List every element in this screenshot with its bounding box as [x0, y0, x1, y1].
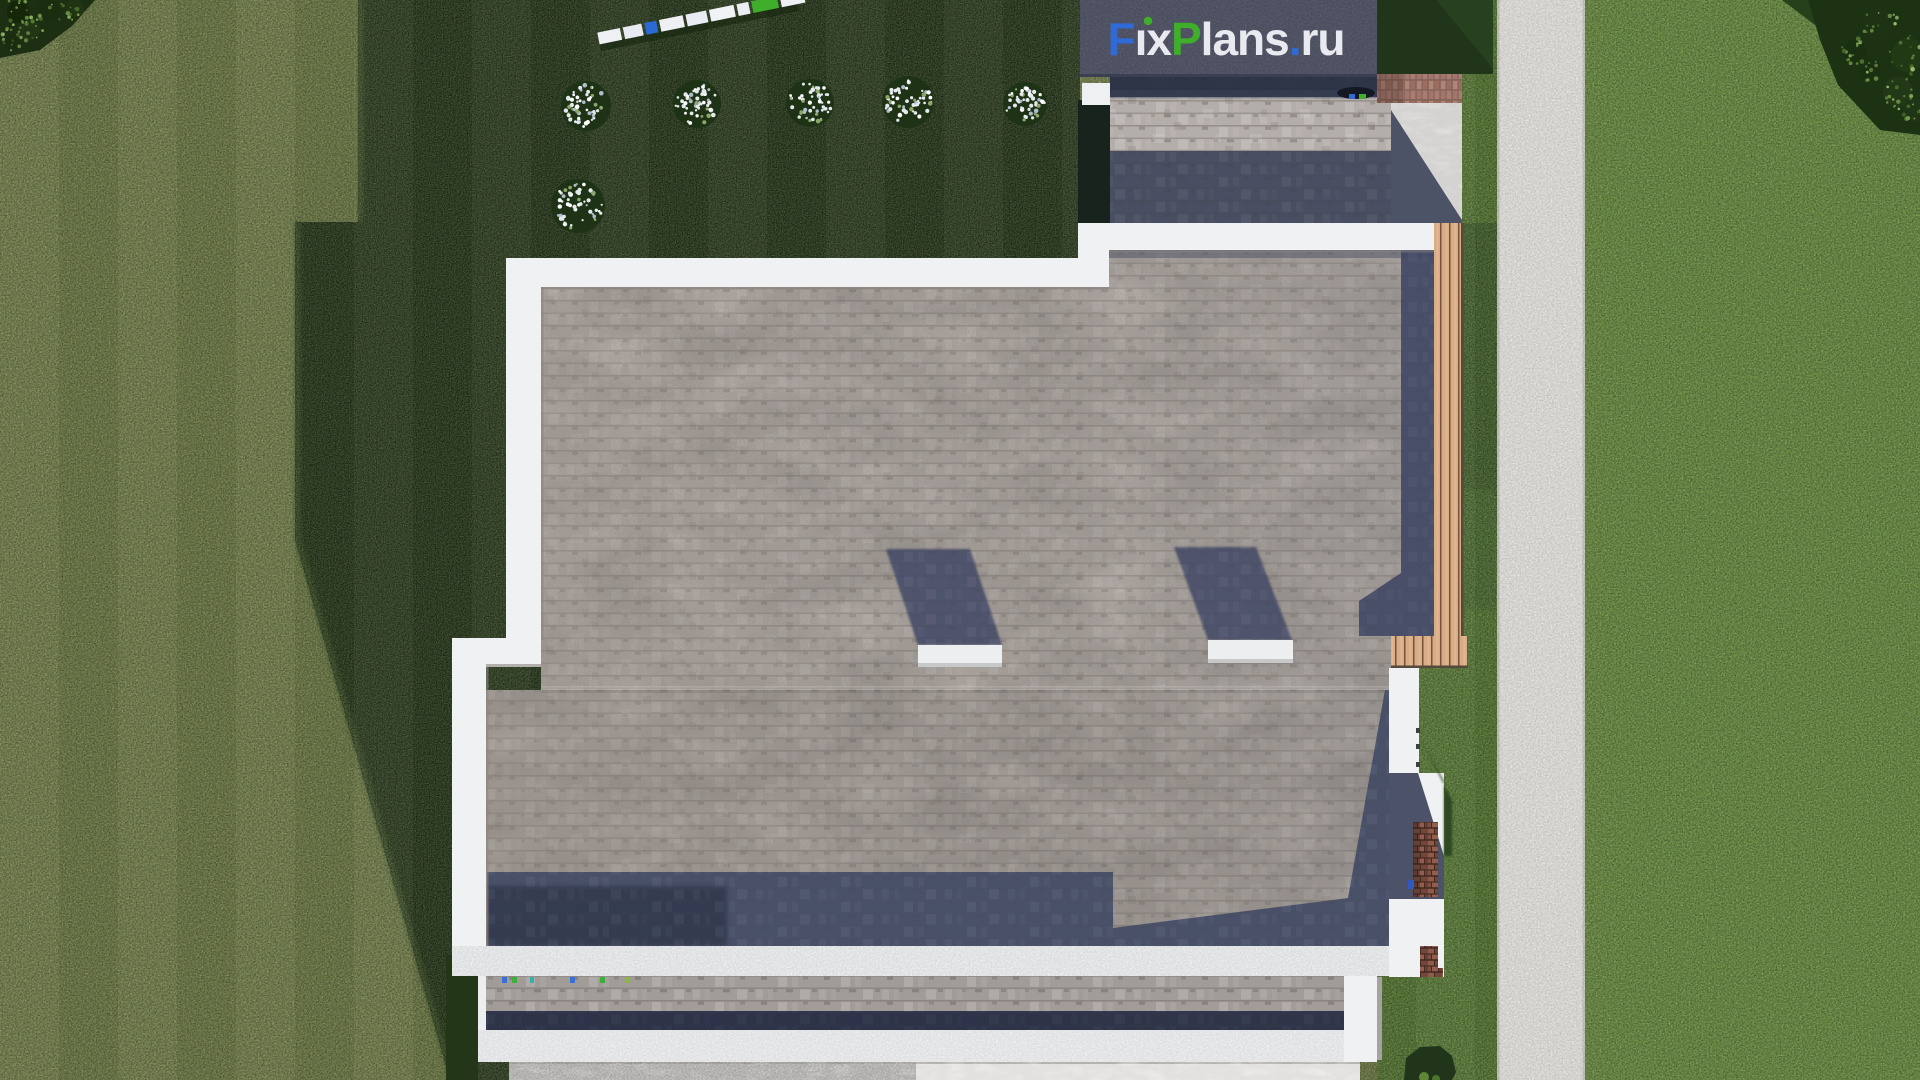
svg-text:FıxPlans.ru: FıxPlans.ru — [1108, 13, 1345, 65]
